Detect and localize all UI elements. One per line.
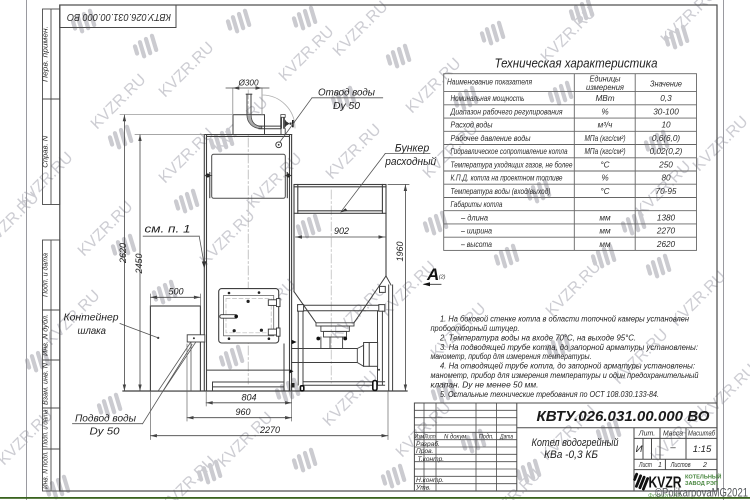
svg-text:Техническая характеристика: Техническая характеристика (495, 56, 658, 71)
svg-text:2270: 2270 (656, 227, 676, 236)
svg-text:500: 500 (168, 287, 183, 297)
svg-text:шлака: шлака (78, 325, 107, 337)
svg-text:N докум.: N докум. (444, 433, 468, 441)
svg-text:Единицы: Единицы (590, 75, 621, 84)
svg-text:Значение: Значение (650, 80, 682, 89)
svg-text:KVZR.RU: KVZR.RU (320, 368, 382, 430)
svg-text:80: 80 (661, 174, 671, 183)
svg-text:КВТУ.026.031.00.000 ВО: КВТУ.026.031.00.000 ВО (67, 11, 171, 22)
svg-text:МПа (кгс/см²): МПа (кгс/см²) (585, 147, 626, 156)
svg-text:1:15: 1:15 (693, 444, 712, 455)
svg-text:Рабочее давление воды: Рабочее давление воды (451, 134, 531, 143)
svg-text:– ширина: – ширина (460, 227, 492, 236)
svg-text:(2): (2) (439, 275, 446, 281)
svg-text:0,3: 0,3 (660, 94, 672, 103)
svg-text:Лит.: Лит. (638, 430, 655, 437)
svg-text:0,02(0,2): 0,02(0,2) (650, 147, 683, 156)
svg-text:К.П.Д. котла на проектном топл: К.П.Д. котла на проектном топливе (451, 174, 563, 183)
svg-text:1380: 1380 (657, 213, 676, 222)
svg-text:2450: 2450 (134, 253, 144, 274)
svg-text:960: 960 (235, 407, 250, 417)
svg-text:Подп. и дата: Подп. и дата (42, 409, 50, 447)
svg-text:–: – (669, 442, 676, 453)
svg-text:Масса: Масса (663, 430, 683, 437)
svg-text:КВТУ.026.031.00.000 ВО: КВТУ.026.031.00.000 ВО (537, 408, 710, 425)
svg-text:°С: °С (600, 160, 609, 169)
svg-text:МПа (кгс/см²): МПа (кгс/см²) (585, 134, 626, 143)
svg-text:KVZR.RU: KVZR.RU (543, 258, 605, 320)
svg-text:Подвод воды: Подвод воды (75, 413, 136, 425)
svg-text:KVZR.RU: KVZR.RU (88, 71, 150, 133)
svg-text:KVZR.RU: KVZR.RU (244, 150, 306, 212)
svg-text:Т.контр.: Т.контр. (418, 456, 445, 463)
svg-text:МВт: МВт (595, 94, 614, 103)
svg-text:Температура воды (вход/выход): Температура воды (вход/выход) (451, 187, 551, 196)
svg-text:Масштаб: Масштаб (688, 429, 716, 437)
svg-text:мм: мм (599, 240, 611, 249)
svg-text:КВа -0,3 КБ: КВа -0,3 КБ (544, 449, 598, 461)
svg-text:измерения: измерения (586, 83, 625, 92)
svg-text:Подп. и дата: Подп. и дата (42, 253, 50, 297)
svg-text:°С: °С (600, 187, 609, 196)
svg-text:%: % (601, 174, 608, 183)
svg-text:расходный: расходный (384, 156, 436, 168)
svg-text:Котел водогрейный: Котел водогрейный (532, 437, 619, 449)
svg-text:Dу 50: Dу 50 (90, 426, 120, 438)
svg-text:Взам. инв. N: Взам. инв. N (43, 362, 50, 405)
svg-text:Листов: Листов (670, 462, 691, 469)
svg-text:1960: 1960 (395, 241, 405, 261)
svg-text:804: 804 (241, 392, 256, 402)
svg-text:Изм: Изм (414, 434, 424, 441)
svg-text:KVZR.RU: KVZR.RU (323, 121, 385, 183)
svg-text:250: 250 (658, 160, 673, 169)
svg-text:Температура уходящих газов, не: Температура уходящих газов, не более (451, 160, 573, 169)
svg-text:30-100: 30-100 (653, 107, 679, 116)
svg-text:Габариты котла: Габариты котла (451, 200, 503, 209)
svg-text:мм: мм (599, 227, 611, 236)
svg-text:И: И (636, 444, 643, 455)
svg-text:Подп.: Подп. (479, 433, 494, 441)
svg-text:мм: мм (599, 213, 611, 222)
svg-text:5. Остальные технические треб: 5. Остальные технические требования по О… (440, 389, 659, 399)
svg-text:– высота: – высота (460, 240, 492, 249)
svg-text:Диапазон рабочего регулировани: Диапазон рабочего регулирования (450, 107, 563, 116)
svg-text:KVZR.RU: KVZR.RU (215, 409, 277, 471)
svg-text:см. п. 1: см. п. 1 (145, 224, 191, 236)
svg-text:– длина: – длина (460, 213, 488, 222)
svg-text:KVZR.RU: KVZR.RU (690, 113, 750, 175)
svg-text:KVZR.RU: KVZR.RU (158, 453, 220, 500)
svg-text:Ø300: Ø300 (238, 78, 259, 88)
svg-text:10: 10 (661, 121, 671, 130)
svg-text:Отвод воды: Отвод воды (318, 87, 375, 99)
svg-text:Разраб.: Разраб. (416, 440, 440, 448)
svg-text:2270: 2270 (259, 425, 280, 435)
svg-text:2620: 2620 (656, 240, 676, 249)
svg-text:KVZR.RU: KVZR.RU (276, 23, 338, 85)
svg-text:КОТЕЛЬНЫЙ: КОТЕЛЬНЫЙ (685, 473, 721, 481)
svg-text:KVZR.RU: KVZR.RU (0, 189, 42, 251)
svg-text:Гидравлическое сопротивление к: Гидравлическое сопротивление котла (451, 147, 568, 156)
svg-text:1: 1 (658, 462, 662, 469)
svg-text:Лист: Лист (424, 434, 436, 441)
svg-text:А: А (426, 265, 439, 284)
svg-text:%: % (601, 107, 608, 116)
svg-text:Перв. примен.: Перв. примен. (43, 26, 50, 82)
svg-text:Пров.: Пров. (416, 448, 434, 455)
svg-text:902: 902 (334, 226, 349, 236)
svg-text:70-95: 70-95 (656, 187, 677, 196)
svg-text:Лист: Лист (638, 462, 652, 469)
svg-text:Инв. N подл.: Инв. N подл. (42, 451, 50, 489)
svg-text:Dу 50: Dу 50 (333, 100, 360, 112)
svg-text:KVZR.RU: KVZR.RU (330, 0, 392, 60)
svg-text:Бункер: Бункер (395, 143, 430, 155)
svg-text:0,6(6,0): 0,6(6,0) (652, 134, 680, 143)
svg-text:Н.контр.: Н.контр. (416, 477, 444, 484)
svg-text:Расход воды: Расход воды (451, 121, 493, 130)
svg-text:Справ. N: Справ. N (43, 135, 50, 168)
svg-text:Утв.: Утв. (415, 484, 431, 491)
svg-text:2: 2 (702, 462, 707, 469)
svg-text:2620: 2620 (118, 243, 128, 264)
svg-text:Дата: Дата (499, 434, 513, 441)
svg-text:Контейнер: Контейнер (64, 312, 119, 324)
svg-text:м³/ч: м³/ч (598, 121, 614, 130)
svg-text:Инв. N дубл.: Инв. N дубл. (42, 314, 50, 356)
svg-text:Номинальная мощность: Номинальная мощность (451, 94, 525, 103)
svg-text:Наименование показателя: Наименование показателя (447, 78, 533, 87)
svg-text:KVZR.RU: KVZR.RU (483, 466, 545, 500)
svg-text:KVZR.RU: KVZR.RU (156, 39, 218, 101)
